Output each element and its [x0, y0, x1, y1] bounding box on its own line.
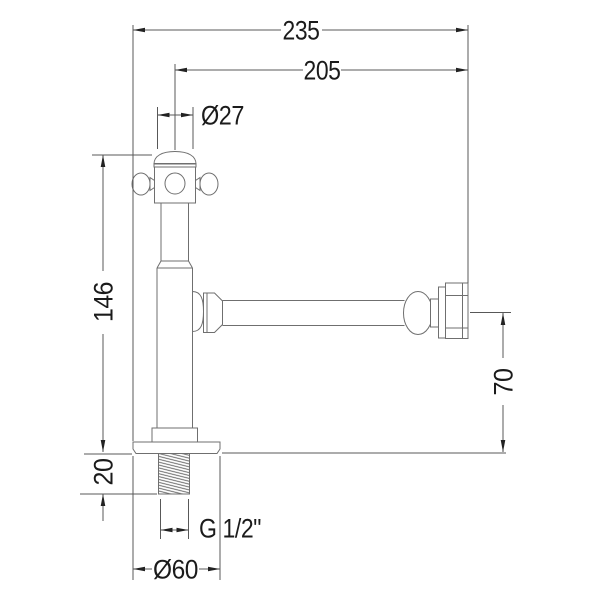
drawing-svg: 235 205 Ø27 146 70: [0, 0, 600, 600]
outlet-nut: [204, 293, 223, 333]
dimension-label-thread-spec: G 1/2": [199, 513, 261, 543]
arrowhead: [101, 155, 106, 167]
dimension-label-outlet-reach: 205: [304, 55, 341, 85]
dimension-146: 146: [88, 155, 152, 452]
ball-joint: [404, 292, 433, 335]
base-flange: [133, 442, 220, 454]
right-knob-stem: [196, 178, 201, 191]
dimension-label-outlet-height: 70: [488, 369, 518, 396]
thread-hatch-a: [159, 454, 190, 495]
taper-left: [157, 261, 161, 268]
trap-assembly: [132, 152, 468, 495]
arrowhead: [456, 68, 468, 73]
dimension-20: 20: [80, 454, 157, 521]
arrowhead: [208, 567, 220, 572]
outlet-olive: [193, 292, 204, 332]
valve-cap-dome: [154, 152, 196, 165]
dimension-label-total-height: 146: [88, 282, 118, 322]
arrowhead: [501, 440, 506, 452]
arrowhead: [456, 28, 468, 33]
dimension-label-body-diameter: Ø27: [201, 100, 244, 130]
dimension-label-thread-length: 20: [88, 459, 118, 486]
base-step: [152, 428, 198, 442]
arrowhead: [501, 313, 506, 325]
dimension-label-overall-width: 235: [283, 15, 320, 45]
arrowhead: [175, 68, 187, 73]
taper-right: [189, 261, 193, 268]
arrowhead: [133, 567, 145, 572]
arrowhead: [101, 440, 106, 452]
left-knob: [132, 173, 150, 195]
compression-collar: [431, 299, 439, 327]
arrowhead: [101, 494, 106, 506]
dimension-label-base-diameter: Ø60: [153, 554, 198, 584]
dimension-235: 235: [133, 15, 468, 441]
technical-drawing-canvas: 235 205 Ø27 146 70: [0, 0, 600, 600]
front-knob: [165, 173, 185, 194]
dimension-70: 70: [222, 313, 518, 454]
right-knob: [200, 173, 218, 195]
dimension-d27: Ø27: [158, 100, 245, 149]
compression-nut: [446, 283, 469, 339]
dimension-g-half: G 1/2": [161, 499, 262, 543]
arrowhead: [177, 528, 189, 533]
arrowhead: [133, 28, 145, 33]
arrowhead: [158, 113, 170, 118]
left-knob-stem: [150, 178, 155, 191]
compression-ring: [439, 287, 446, 338]
arrowhead: [181, 113, 193, 118]
arrowhead: [161, 528, 173, 533]
